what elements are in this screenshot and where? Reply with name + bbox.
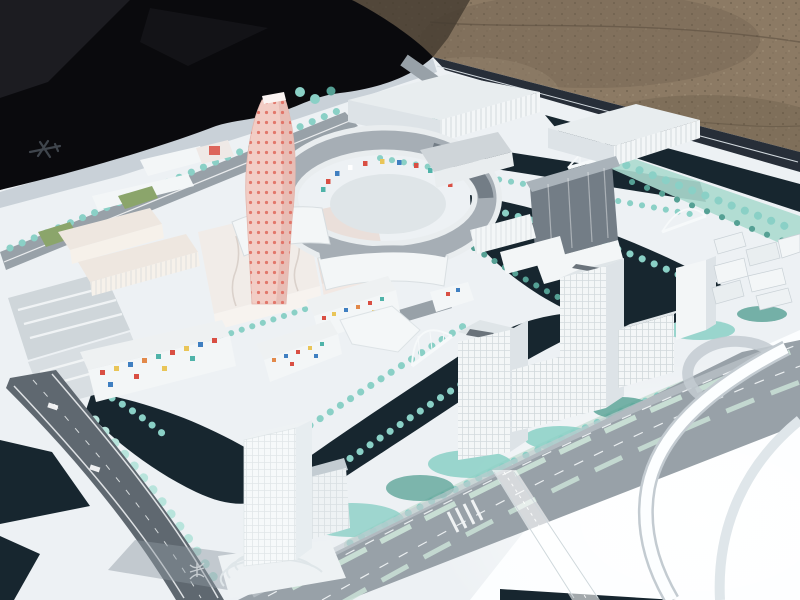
red-facade-accent xyxy=(209,146,220,155)
photo-architectural-model xyxy=(0,0,800,600)
model-photo-canvas xyxy=(0,0,800,600)
ring-courtyard xyxy=(330,174,446,234)
pink-dotted-tower xyxy=(246,92,296,304)
